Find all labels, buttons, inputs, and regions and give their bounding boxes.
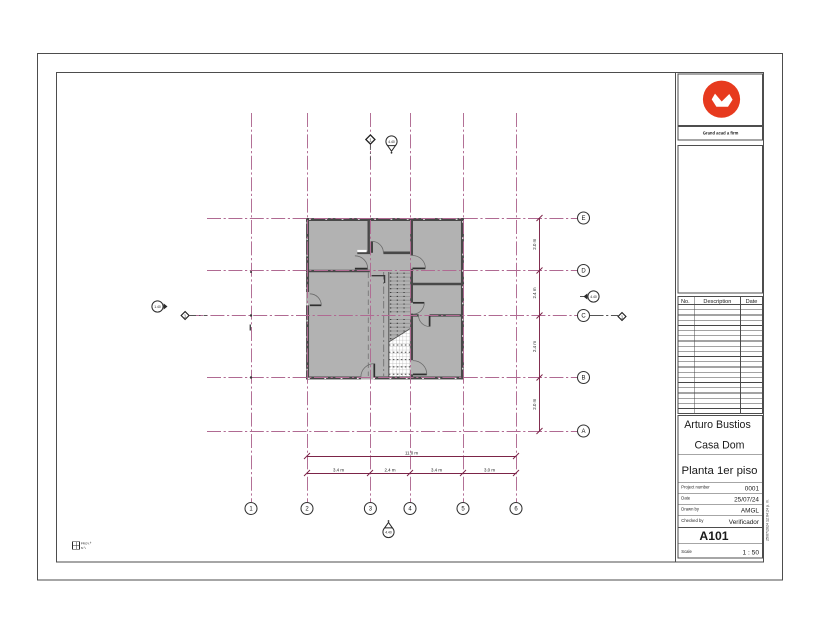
svg-text:3.4 m: 3.4 m [431, 467, 442, 472]
svg-text:4.40: 4.40 [590, 295, 597, 299]
svg-text:25/07/2024 12:04:24 p. m.: 25/07/2024 12:04:24 p. m. [766, 499, 770, 541]
svg-text:D: D [581, 269, 586, 275]
svg-text:2.4 m: 2.4 m [532, 287, 537, 298]
svg-text:0001: 0001 [745, 485, 760, 492]
svg-text:Drawn by: Drawn by [681, 507, 700, 512]
svg-text:Verificador: Verificador [729, 519, 760, 526]
svg-text:Date: Date [681, 496, 691, 501]
svg-text:Scale: Scale [681, 549, 692, 554]
svg-text:Planta 1er piso: Planta 1er piso [682, 465, 758, 477]
svg-text:2.0 m: 2.0 m [532, 398, 537, 409]
svg-text:•·: •· [90, 541, 92, 544]
svg-text:Grand acad a firm: Grand acad a firm [703, 131, 739, 136]
svg-text:No.: No. [681, 299, 690, 305]
svg-text:2.4 m: 2.4 m [385, 467, 396, 472]
svg-text:Project number: Project number [681, 485, 710, 490]
svg-text:1 : 50: 1 : 50 [743, 550, 760, 557]
svg-text:N.º•: N.º• [81, 546, 86, 550]
svg-text:3.0 m: 3.0 m [484, 467, 495, 472]
svg-text:1.40: 1.40 [154, 305, 161, 309]
svg-text:Checked by: Checked by [681, 518, 704, 523]
svg-text:Date: Date [746, 299, 758, 305]
svg-text:25/07/24: 25/07/24 [734, 496, 759, 503]
svg-text:2.4 m: 2.4 m [532, 341, 537, 352]
svg-text:2.0 m: 2.0 m [532, 238, 537, 249]
svg-text:AMGL: AMGL [741, 507, 760, 514]
svg-text:Arturo Bustios: Arturo Bustios [684, 419, 751, 431]
svg-text:A: A [581, 429, 585, 435]
svg-text:11.0 m: 11.0 m [405, 450, 418, 455]
svg-text:B: B [581, 376, 585, 382]
svg-text:Description: Description [703, 299, 731, 305]
svg-text:E: E [581, 216, 585, 222]
svg-text:Casa Dom: Casa Dom [694, 439, 744, 451]
svg-text:4.40: 4.40 [385, 531, 392, 535]
svg-text:A101: A101 [699, 529, 728, 543]
svg-text:C: C [581, 314, 586, 320]
svg-text:3.4 m: 3.4 m [333, 467, 344, 472]
svg-text:4.40: 4.40 [388, 140, 395, 144]
